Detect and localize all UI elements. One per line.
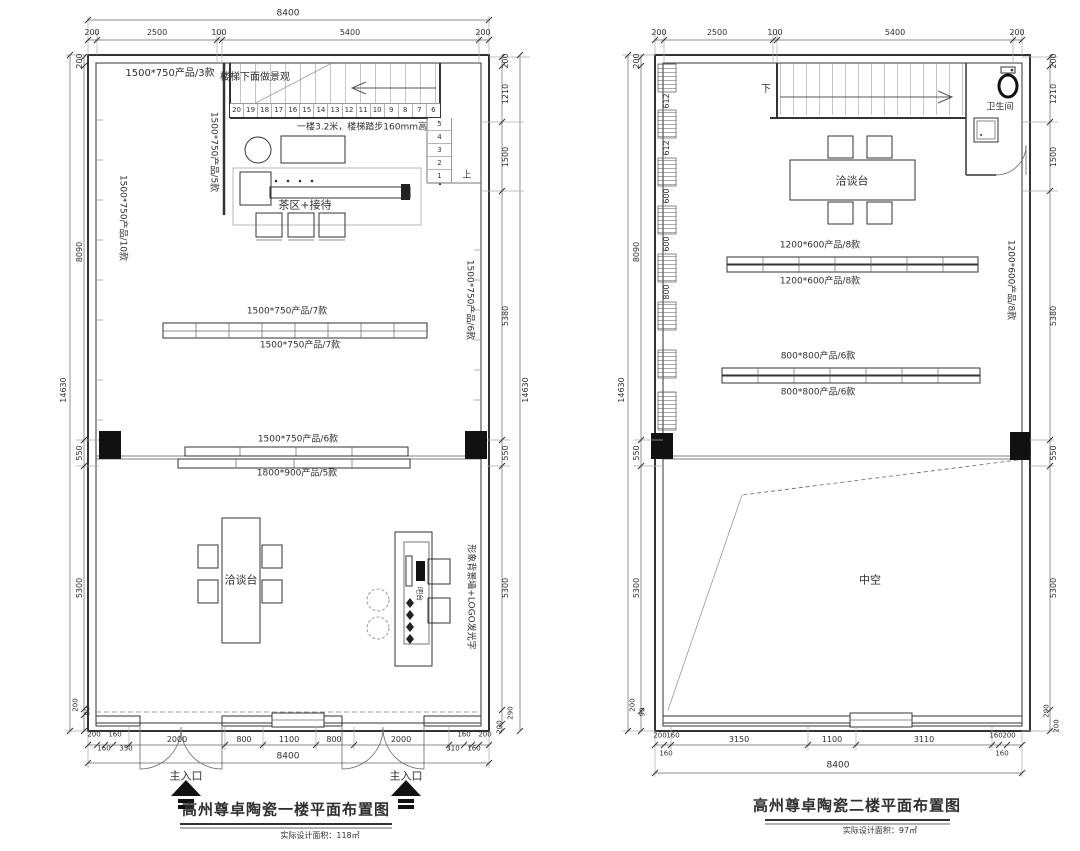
floor2-subtitle: 实际设计面积：97㎡ [843,827,917,835]
under-stairs-note: 楼梯下面做景观 [220,73,290,83]
dim: 8090 [76,242,84,262]
dim: 1210 [502,84,510,104]
table-label: 洽谈台 [225,575,258,586]
dim: 5300 [76,578,84,598]
dim: 200 [633,53,641,68]
dim: 2000 [391,736,411,744]
chair [828,202,853,224]
floor2-bottom-wall [663,713,1022,727]
dim: 90 [85,707,92,716]
dim: 200 [478,732,491,739]
rack-label: 800*800产品/6款 [781,353,856,362]
floor1-display-rack-mid [163,323,427,338]
dim: 160 [659,751,672,758]
table-label: 洽谈台 [836,176,869,187]
stair-tread-numbers-upper: 20191817161514131211109876 [230,103,440,117]
tea-bar-counter [270,187,410,198]
dim: 200 [76,53,84,68]
dim: 160 [995,751,1008,758]
rack-segment-label: 600 [663,188,671,203]
rack-label: 1500*750产品/6款 [258,436,338,445]
dim-left-total: 14630 [60,377,68,402]
plant-icon [367,617,389,639]
rack-label: 1500*750产品/6款 [465,260,474,340]
dim: 550 [76,445,84,460]
chair [262,545,282,568]
dim: 100 [211,29,226,37]
void-label: 中空 [859,575,881,586]
dim: 2500 [147,29,167,37]
dim: 5380 [502,306,510,326]
dim: 550 [1050,445,1058,460]
dim: 290 [1044,704,1051,717]
dim: 290 [508,706,515,719]
dim: 1500 [502,147,510,167]
dim: 5400 [885,29,905,37]
rack-label: 1500*750产品/7款 [260,342,340,351]
dim: 200 [651,29,666,37]
dim: 200 [73,698,80,711]
stair-up-label: 上 [462,172,471,181]
dim: 350 [119,746,132,753]
chair [828,136,853,158]
dim-top-total: 8400 [277,10,300,19]
toilet-icon [999,67,1017,97]
rack-segment-label: 800 [663,284,671,299]
rack-segment-label: 612 [663,93,671,108]
dim: 100 [767,29,782,37]
rack-label: 1200*600产品/8款 [780,242,860,251]
dim: 1100 [279,736,299,744]
column [99,431,121,459]
dim: 160 [108,732,121,739]
dim: 160 [457,732,470,739]
floor1-dimension-ticks [67,17,523,766]
dim: 200 [1054,719,1061,732]
column [465,431,487,459]
dim: 5300 [1050,578,1058,598]
floor1-subtitle: 实际设计面积：118㎡ [280,832,359,840]
dim: 200 [653,733,666,740]
floor1-inner-wall [96,63,481,723]
dim: 200 [84,29,99,37]
floor2-plan [622,30,1058,824]
tea-area-label: 茶区+接待 [278,200,331,211]
dim: 5300 [502,578,510,598]
stair-note: 一楼3.2米，楼梯踏步160mm高 [297,124,427,133]
counter-rect [281,136,345,163]
dim: 200 [630,698,637,711]
stair-down-label: 下 [761,85,771,95]
entrance-label: 主入口 [170,771,203,782]
dim: 3150 [729,736,749,744]
dim: 200 [1009,29,1024,37]
chair [867,136,892,158]
dim: 160 [666,733,679,740]
dim: 2500 [707,29,727,37]
chair [198,580,218,603]
plant-icon [367,589,389,611]
rack-segment-label: 600 [663,236,671,251]
floor1-bar-counter [367,532,450,666]
dim: 800 [236,736,251,744]
dim: 160 [97,746,110,753]
floor2-void-area [668,460,1018,710]
rack-label: 1500*750产品/7款 [247,308,327,317]
bar-label: 吧台 [416,587,423,601]
dim: 5380 [1050,306,1058,326]
dim: 200 [1002,733,1015,740]
dim: 1500 [1050,147,1058,167]
floor2-bathroom [966,63,1026,175]
column [651,433,673,459]
dim: 200 [502,53,510,68]
dim: 2000 [167,736,187,744]
dim: 1210 [1050,84,1058,104]
chair [262,580,282,603]
dim: 90 [640,708,647,717]
chair [428,559,450,584]
dim: 5300 [633,578,641,598]
floor1-plan [66,16,530,828]
sink-icon [974,118,998,142]
dim: 310 [446,746,459,753]
dim: 8090 [633,242,641,262]
dim: 200 [475,29,490,37]
rack-label: 1800*900产品/5款 [257,470,337,479]
dim-bottom-total: 8400 [277,753,300,762]
logo-wall-label: 形象背景墙+LOGO发光字 [466,544,475,649]
floor2-display-rack-2 [722,368,980,383]
chair [867,202,892,224]
rack-label: 1500*750产品/10款 [118,175,127,261]
bathroom-label: 卫生间 [986,104,1013,113]
dim-left-total: 14630 [618,377,626,402]
dim: 200 [87,732,100,739]
chair [428,598,450,623]
rack-segment-label: 612 [663,140,671,155]
floor2-title: 高州尊卓陶瓷二楼平面布置图 [753,799,961,814]
dim: 160 [989,733,1002,740]
entrance-label: 主入口 [390,771,423,782]
tea-table-round [245,137,271,163]
rack-label: 800*800产品/6款 [781,389,856,398]
dim: 800 [326,736,341,744]
floor1-display-rack-band [178,447,410,468]
dim: 160 [467,746,480,753]
dim: 3110 [914,736,934,744]
dim-right-total: 14630 [522,377,530,402]
stair-tread-numbers-lower: 54321 [428,118,452,183]
floor1-tea-area [233,136,421,240]
rack-label: 1500*750产品/5款 [209,112,218,192]
room-label: 1500*750产品/3款 [125,69,214,79]
dim: 550 [633,445,641,460]
floorplan-canvas: 20191817161514131211109876 54321 1500*75… [0,0,1080,851]
dim: 1100 [822,736,842,744]
floor2-dimension-ticks [625,37,1053,776]
dim: 200 [497,720,504,733]
floor2-stairs [770,63,970,118]
rack-label: 1200*600产品/8款 [1006,240,1015,320]
rack-label: 1200*600产品/8款 [780,278,860,287]
dim: 550 [502,445,510,460]
column [1010,432,1030,460]
dim-bottom-total: 8400 [827,762,850,771]
chair [198,545,218,568]
floor2-display-rack-1 [727,257,978,272]
plan-drawing [0,0,1080,851]
dim: 5400 [340,29,360,37]
dim: 200 [1050,53,1058,68]
floor1-title: 高州尊卓陶瓷一楼平面布置图 [182,803,390,818]
